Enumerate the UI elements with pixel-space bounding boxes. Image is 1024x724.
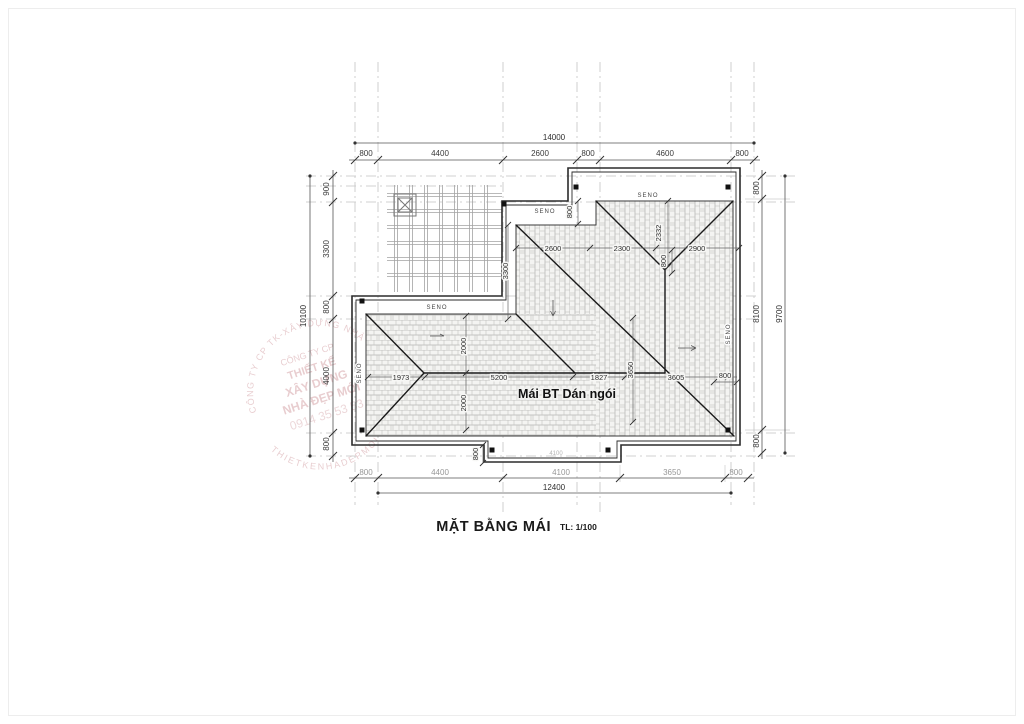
dim-2000-lower: 2000 xyxy=(459,395,468,412)
dim-top-seg: 800 xyxy=(735,149,749,158)
dim-3650: 3650 xyxy=(626,362,635,379)
bottom-dimension-labels: 12400 800 4400 4100 3650 800 xyxy=(359,468,743,492)
dim-top-seg: 800 xyxy=(581,149,595,158)
dim-2600: 2600 xyxy=(545,244,562,253)
dim-left-seg: 4000 xyxy=(322,367,331,385)
seno-label-left: SENO xyxy=(357,362,363,383)
dim-right-seg: 800 xyxy=(752,181,761,195)
dim-right-seg: 800 xyxy=(752,434,761,448)
right-dimension-labels: 9700 800 8100 800 xyxy=(752,181,784,448)
roof-material-label: Mái BT Dán ngói xyxy=(518,387,616,401)
dim-right-seg: 8100 xyxy=(752,305,761,323)
drawing-title: MẶT BẰNG MÁI TL: 1/100 xyxy=(436,517,597,535)
dim-2300: 2300 xyxy=(614,244,631,253)
dim-2000-upper: 2000 xyxy=(459,338,468,355)
dim-bottom-seg: 4100 xyxy=(552,468,570,477)
dim-left-seg: 800 xyxy=(322,300,331,314)
drawing-sheet: CÔNG TY CP TK-XÂY DỰNG NHÀ ĐẸP MỚI THIET… xyxy=(0,0,1024,724)
dim-bottom-seg: 800 xyxy=(359,468,373,477)
roof-plan-drawing: CÔNG TY CP TK-XÂY DỰNG NHÀ ĐẸP MỚI THIET… xyxy=(0,0,1024,724)
dim-left-seg: 3300 xyxy=(322,240,331,258)
dim-bottom-seg: 3650 xyxy=(663,468,681,477)
dim-bottom-seg: 4400 xyxy=(431,468,449,477)
seno-label-leftwing: SENO xyxy=(426,305,447,311)
dim-left-seg: 900 xyxy=(322,182,331,196)
dim-3300: 3300 xyxy=(501,263,510,280)
title-text: MẶT BẰNG MÁI xyxy=(436,517,551,535)
dim-2332: 2332 xyxy=(654,225,663,242)
dim-left-seg: 800 xyxy=(322,437,331,451)
dim-top-seg: 800 xyxy=(359,149,373,158)
seno-label-right: SENO xyxy=(726,323,732,344)
dim-left-total: 10100 xyxy=(299,304,308,327)
dim-bottom-total: 12400 xyxy=(543,483,566,492)
dim-top-total: 14000 xyxy=(543,133,566,142)
seno-label-step: SENO xyxy=(534,209,555,215)
dim-3605: 3605 xyxy=(668,373,685,382)
dim-800-porch: 800 xyxy=(471,448,480,461)
dim-1827: 1827 xyxy=(591,373,608,382)
dim-1973: 1973 xyxy=(393,373,410,382)
company-watermark: CÔNG TY CP TK-XÂY DỰNG NHÀ ĐẸP MỚI THIET… xyxy=(0,0,414,568)
dim-4100-porch: 4100 xyxy=(549,451,563,457)
dim-top-seg: 2600 xyxy=(531,149,549,158)
dim-800-eave: 800 xyxy=(719,371,732,380)
dim-bottom-seg: 800 xyxy=(729,468,743,477)
title-scale: TL: 1/100 xyxy=(560,522,597,532)
dim-top-seg: 4600 xyxy=(656,149,674,158)
dim-5200: 5200 xyxy=(491,373,508,382)
top-dimension-labels: 14000 800 4400 2600 800 4600 800 xyxy=(359,133,749,158)
dim-800-step: 800 xyxy=(565,206,574,219)
dim-right-total: 9700 xyxy=(775,305,784,323)
dim-800-ridge: 800 xyxy=(659,255,668,268)
dim-2900: 2900 xyxy=(689,244,706,253)
seno-label-top: SENO xyxy=(637,193,658,199)
pergola-trellis xyxy=(387,185,502,292)
dim-top-seg: 4400 xyxy=(431,149,449,158)
